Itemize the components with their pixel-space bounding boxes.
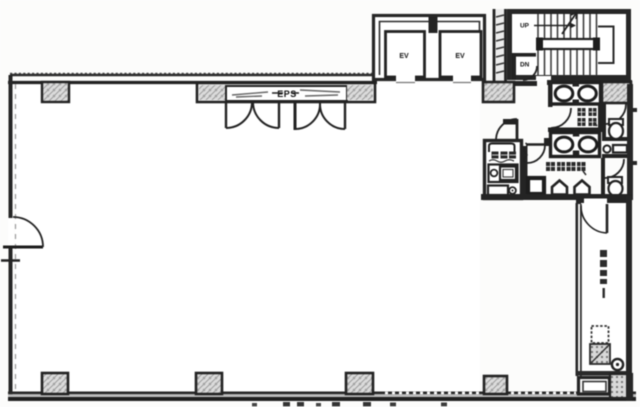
svg-text:EV: EV bbox=[399, 53, 409, 60]
svg-text:UP: UP bbox=[520, 23, 530, 30]
svg-text:EV: EV bbox=[455, 53, 465, 60]
svg-text:DN: DN bbox=[520, 62, 530, 69]
svg-text:EPS: EPS bbox=[277, 89, 297, 99]
